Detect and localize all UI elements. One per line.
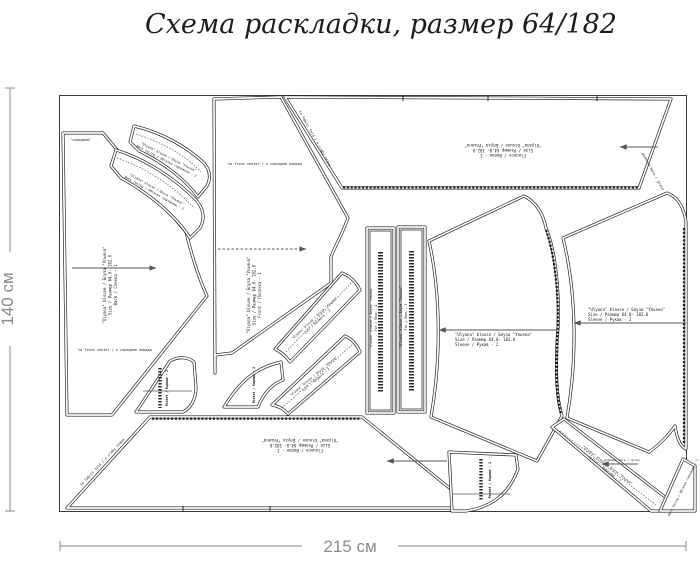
svg-text:"Ulyana" blouse / Блуза "Ульян: "Ulyana" blouse / Блуза "Ульяна" [464, 143, 541, 148]
pattern-layout-diagram: Схема раскладки, размер 64/182 140 см 21… [0, 0, 700, 567]
svg-text:Size / Размер 64.0- 182.0: Size / Размер 64.0- 182.0 [108, 254, 113, 315]
width-dimension: 215 см [60, 537, 686, 556]
piece-sleeve-right: "Ulyana" blouse / Блуза "Ульяна" Size / … [563, 193, 686, 452]
svg-text:Tie / Пояс - 2: Tie / Пояс - 2 [404, 303, 408, 330]
svg-text:долевая нить / grain: долевая нить / grain [604, 458, 640, 462]
svg-text:Pocket / Карман - 2: Pocket / Карман - 2 [252, 367, 256, 404]
svg-text:Pocket / Карман - 2: Pocket / Карман - 2 [165, 370, 169, 407]
piece-tie-left: "Ulyana" blouse / Блуза "Ульяна" Tie / П… [367, 228, 394, 413]
svg-text:"Ulyana" blouse / Блуза "Ульян: "Ulyana" blouse / Блуза "Ульяна" [369, 287, 373, 348]
svg-text:Flounce / Волан - 1: Flounce / Волан - 1 [480, 153, 526, 158]
svg-text:Pocket / Карман - 2: Pocket / Карман - 2 [488, 462, 492, 499]
svg-text:Back / Спинка - 1: Back / Спинка - 1 [113, 264, 118, 306]
svg-text:"Ulyana" blouse / Блуза "Ульян: "Ulyana" blouse / Блуза "Ульяна" [102, 246, 107, 323]
svg-text:Size / Размер 64.0- 182.0: Size / Размер 64.0- 182.0 [269, 443, 330, 448]
svg-text:Sleeve / Рукав - 2: Sleeve / Рукав - 2 [455, 342, 499, 347]
page-title: Схема раскладки, размер 64/182 [145, 9, 617, 40]
svg-text:"Ulyana" blouse / Блуза "Ульян: "Ulyana" blouse / Блуза "Ульяна" [399, 286, 403, 347]
width-label: 215 см [323, 537, 376, 556]
svg-text:Size / Размер 64.0- 182.0: Size / Размер 64.0- 182.0 [252, 264, 257, 325]
svg-text:Sleeve / Рукав - 2: Sleeve / Рукав - 2 [588, 317, 632, 322]
svg-text:Size / Размер 64.0- 182.0: Size / Размер 64.0- 182.0 [472, 148, 533, 153]
svg-text:"середина": "середина" [70, 138, 91, 142]
svg-text:"Ulyana" blouse / Блуза "Ульян: "Ulyana" blouse / Блуза "Ульяна" [261, 438, 338, 443]
svg-text:Tie / Пояс - 2: Tie / Пояс - 2 [374, 304, 378, 331]
svg-text:to front center / к середине п: to front center / к середине переда [78, 348, 152, 352]
svg-text:Flounce / Волан - 1: Flounce / Волан - 1 [277, 448, 323, 453]
piece-tie-right: "Ulyana" blouse / Блуза "Ульяна" Tie / П… [398, 227, 425, 412]
svg-text:Front / Полочка - 1: Front / Полочка - 1 [257, 272, 262, 318]
svg-text:"Ulyana" blouse / Блуза "Ульян: "Ulyana" blouse / Блуза "Ульяна" [246, 256, 251, 333]
piece-sleeve-left: "Ulyana" blouse / Блуза "Ульяна" Size / … [429, 196, 562, 461]
height-label: 140 см [0, 272, 17, 325]
height-dimension: 140 см [0, 88, 17, 511]
piece-back-flounce: "Ulyana" blouse / Блуза "Ульяна" Size / … [285, 96, 671, 191]
layout-scheme: Схема раскладки, размер 64/182 140 см 21… [0, 0, 700, 567]
svg-text:to front center / к середине п: to front center / к середине переда [228, 162, 302, 166]
